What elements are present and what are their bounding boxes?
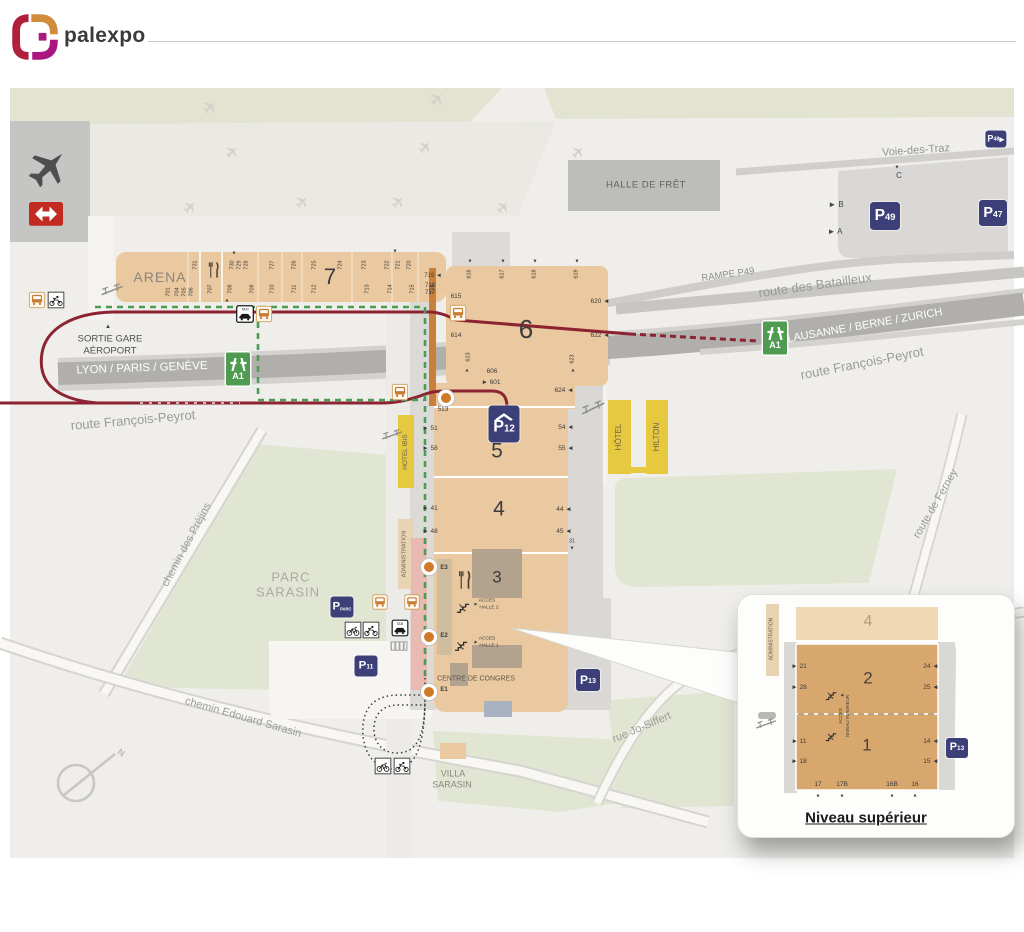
tram-icon [579, 399, 607, 418]
map-label-710: 710 [270, 284, 276, 293]
taxi-icon: TAXI [236, 305, 254, 323]
lausanne-berne-zurich: LAUSANNE / BERNE / ZURICH [787, 307, 944, 345]
map-label--: ▼ [393, 250, 398, 255]
map-label-725: 725 [312, 260, 318, 269]
hall-7: 7 [324, 266, 336, 288]
svg-text:TAXI: TAXI [396, 622, 404, 626]
stairs-icon [454, 638, 468, 652]
map-label-halle-1: HALLE 1 [479, 645, 498, 650]
map-label--: ▼ [232, 252, 237, 257]
map-label-708: 708 [228, 284, 234, 293]
rue-jo-siffert: rue Jo-Siffert [611, 711, 673, 746]
map-label-701: 701 [166, 287, 172, 296]
fork-icon [458, 570, 473, 590]
route-francois-peyrot-right: route François-Peyrot [799, 345, 924, 382]
map-label-724: 724 [338, 260, 344, 269]
sortie-gare-line2: AÉROPORT [83, 346, 136, 356]
parking-badge-p47: P47 [979, 200, 1007, 226]
plane-icon [202, 99, 218, 115]
map-label-624-: 624 ◄ [554, 388, 573, 395]
motorway-badge-a1-right: A1 [762, 320, 789, 356]
motorway-badge-a1-left: A1 [225, 351, 252, 387]
map-label-c: C [896, 172, 902, 180]
bus-icon [450, 305, 467, 322]
voie-des-traz: Voie-des-Traz [882, 143, 951, 159]
map-label--601: ► 601 [481, 380, 500, 387]
map-label-acces: ACCES [479, 600, 496, 605]
map-label-720: 720 [407, 260, 413, 269]
villa-sarasin-line1: VILLA [441, 770, 466, 779]
parking-badge-p49: P49 [870, 202, 900, 230]
centre-de-congres: CENTRE DE CONGRES [437, 676, 515, 683]
map-label-acces: ACCES [479, 638, 496, 643]
entrance-e1: E1 [440, 687, 447, 693]
map-label-707: 707 [208, 284, 214, 293]
map-label-617: 617 [500, 269, 506, 278]
hilton-bar-label: HILTON [653, 423, 661, 452]
bike-icon [345, 622, 362, 639]
map-label--: ► [474, 603, 479, 608]
map-label-715: 715 [410, 284, 416, 293]
stairs-icon [456, 600, 470, 614]
legend: HOTELS SUR SITE / ON - SITE HOTELS / HOT… [0, 858, 1024, 932]
map-label-513: 513 [438, 407, 449, 414]
entrance-markers [421, 390, 455, 701]
map-label-54-: 54 ◄ [558, 425, 573, 432]
bike-icon [375, 758, 392, 775]
hall-6: 6 [519, 316, 533, 342]
parking-badge-p13: P13 [576, 669, 600, 691]
palexpo-site-map: palexpo [0, 0, 1024, 932]
plane-icon [225, 145, 240, 160]
plane-icon [391, 195, 406, 210]
map-label--: ▼ [468, 260, 473, 265]
map-label--b: ► B [828, 201, 843, 209]
map-label-723: 723 [362, 260, 368, 269]
map-label-619: 619 [574, 269, 580, 278]
arena-label: ARENA [133, 270, 186, 284]
taxi-icon: TAXI [392, 620, 409, 637]
entrance-e2: E2 [440, 633, 447, 639]
map-label-719-: 719 ◄ [424, 273, 442, 279]
crosswalk-icon [391, 641, 408, 651]
parking-badge-p48: P48▶ [985, 131, 1006, 148]
moto-icon [48, 292, 65, 309]
plane-icon [496, 200, 511, 215]
map-label-731: 731 [193, 260, 199, 269]
route-francois-peyrot-left: route François-Peyrot [70, 408, 196, 432]
villa-sarasin-line2: SARASIN [432, 781, 472, 790]
map-label--51: ► 51 [422, 426, 437, 433]
plane-icon [571, 145, 586, 160]
map-label-726: 726 [292, 260, 298, 269]
bus-icon [29, 292, 46, 309]
map-label-712: 712 [312, 284, 318, 293]
bus-icon [404, 594, 420, 610]
map-label-711: 711 [292, 285, 298, 294]
map-label-622-: 622 ◄ [590, 333, 609, 340]
parking-badge-p-parc: PPARC [330, 597, 353, 618]
map-label-616: 616 [467, 269, 473, 278]
chemin-edouard-sarasin: chemin Edouard Sarasin [184, 696, 303, 740]
lyon-paris-geneve: LYON / PARIS / GENÈVE [76, 361, 208, 377]
map-label-55-: 55 ◄ [558, 446, 573, 453]
parking-badge-p12: P12 [489, 405, 520, 442]
map-label-730: 730 [230, 260, 236, 269]
map-label--: ▼ [570, 547, 575, 552]
plane-icon [429, 91, 445, 107]
bus-icon [372, 594, 388, 610]
map-label-728: 728 [244, 260, 250, 269]
map-label-721: 721 [396, 260, 402, 269]
moto-icon [394, 758, 411, 775]
rampe-p49: RAMPE P49 [701, 267, 755, 284]
map-label--: ▼ [501, 260, 506, 265]
map-label-714: 714 [388, 284, 394, 293]
map-label-halle-2: HALLE 2 [479, 607, 498, 612]
tram-icon [380, 428, 403, 442]
map-label--: ▲ [571, 369, 576, 374]
fork-icon [208, 261, 221, 279]
map-label-618: 618 [532, 269, 538, 278]
map-label-722: 722 [385, 260, 391, 269]
header: palexpo [0, 0, 1024, 88]
map-label--: ▼ [575, 260, 580, 265]
map-label--: ▲ [465, 369, 470, 374]
halle-de-fret: HALLE DE FRÊT [606, 180, 686, 190]
map-label-45-: 45 ◄ [556, 529, 571, 536]
hall-3: 3 [492, 569, 501, 586]
moto-icon [363, 622, 380, 639]
plane-icon [183, 200, 198, 215]
entrance-e3: E3 [440, 565, 447, 571]
map-label--58: ► 58 [422, 446, 437, 453]
map-label--48: ► 48 [422, 529, 437, 536]
compass-north: N [116, 747, 126, 758]
map-label-614: 614 [451, 333, 462, 340]
map-label-709: 709 [250, 284, 256, 293]
plane-icon [295, 195, 310, 210]
chemin-des-prejins: chemin des Préjins [160, 501, 213, 588]
hotel-ibis-label: HOTEL IBIS [403, 434, 410, 470]
map-label-620-: 620 ◄ [590, 299, 609, 306]
map-label-31: 31 [569, 539, 575, 545]
map-label-44-: 44 ◄ [556, 507, 571, 514]
tram-icon [99, 282, 125, 298]
plane-icon [418, 140, 433, 155]
map-label--: ▼ [895, 166, 900, 171]
map-label-606: 606 [487, 369, 498, 376]
map-label-706: 706 [189, 287, 195, 296]
map-label-729: 729 [237, 260, 243, 269]
map-label--: ▲ [105, 324, 111, 330]
route-des-batailleux: route des Batailleux [758, 271, 873, 300]
map-label--: ▲ [225, 299, 230, 304]
administration-label: ADMINISTRATION [402, 531, 408, 578]
header-divider [148, 41, 1016, 42]
compass-icon [43, 740, 123, 820]
upper-level-inset-card [737, 594, 1015, 838]
parc-sarasin-line1: PARC [271, 571, 310, 584]
bus-icon [256, 306, 273, 323]
sbb-icon [29, 202, 63, 226]
map-label-615: 615 [451, 294, 462, 301]
hall-5: 5 [491, 441, 503, 462]
hall-4: 4 [493, 499, 505, 520]
map-label-623: 623 [570, 354, 576, 363]
plane-icon [25, 145, 71, 191]
map-label-717: 717 [425, 290, 435, 296]
brand-name: palexpo [64, 24, 145, 48]
parking-badge-p11: P11 [355, 656, 378, 677]
sortie-gare-line1: SORTIE GARE [78, 334, 143, 344]
map-label-705: 705 [182, 287, 188, 296]
map-label-718: 718 [425, 283, 435, 289]
map-label--41: ► 41 [422, 506, 437, 513]
route-de-ferney: route de Ferney [912, 468, 960, 541]
palexpo-logo-icon [12, 14, 58, 65]
parc-sarasin-line2: SARASIN [256, 586, 320, 599]
svg-text:TAXI: TAXI [240, 308, 248, 312]
map-label-713: 713 [365, 284, 371, 293]
map-label-704: 704 [175, 287, 181, 296]
map-label-727: 727 [270, 260, 276, 269]
map-label--: ▼ [533, 260, 538, 265]
map-label--a: ► A [827, 228, 842, 236]
map-label--: ► [474, 641, 479, 646]
hotel-bar-label: HÔTEL [615, 424, 623, 451]
map-label-716: 716 [430, 284, 436, 293]
map-label-613: 613 [466, 352, 472, 361]
bus-icon [392, 384, 409, 401]
